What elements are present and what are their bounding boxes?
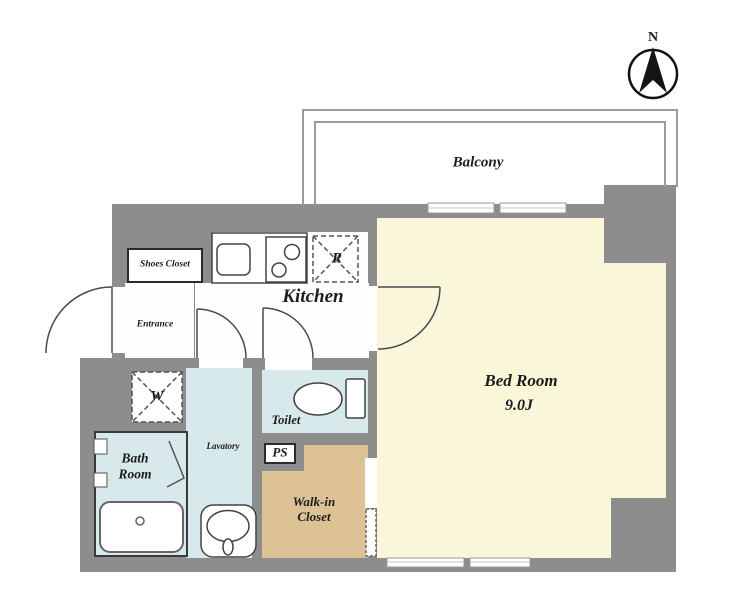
floor-plan: N Balcony Kitchen Shoes Closet Entrance … [0,0,736,589]
north-arrow-icon [629,47,677,98]
refrigerator-label: R [332,250,342,267]
fixtures-overlay [0,0,736,589]
closet-folding-door [366,509,376,556]
bed-room-label: Bed Room [484,371,557,391]
washbasin-icon [201,505,256,557]
bath-folding-door [167,441,184,487]
entrance-label: Entrance [137,320,173,331]
shoes-closet-label: Shoes Closet [140,260,190,271]
kitchen-counter [212,233,307,283]
lavatory-label: Lavatory [207,441,240,451]
bedroom-window-top [428,203,566,213]
bedroom-door-swing [378,287,440,349]
toilet-icon [294,379,365,418]
burner-icon [285,245,300,260]
toilet-door-swing [263,308,313,358]
kitchen-sink [217,244,250,275]
kitchen-label: Kitchen [282,286,343,308]
walk-in-closet-label: Walk-in Closet [275,495,353,525]
bed-room-size-label: 9.0J [505,397,533,415]
front-door-swing [46,287,112,353]
pipe-space-label: PS [272,446,287,461]
balcony-label: Balcony [453,154,504,171]
bedroom-window-bottom [387,558,530,567]
bathtub-icon [100,502,183,552]
bath-room-label: Bath Room [106,450,164,481]
stove [266,237,306,282]
north-label: N [648,30,658,46]
toilet-label: Toilet [272,413,301,427]
lavatory-door-swing [197,309,246,358]
burner-icon [272,263,286,277]
washer-label: W [150,388,163,405]
